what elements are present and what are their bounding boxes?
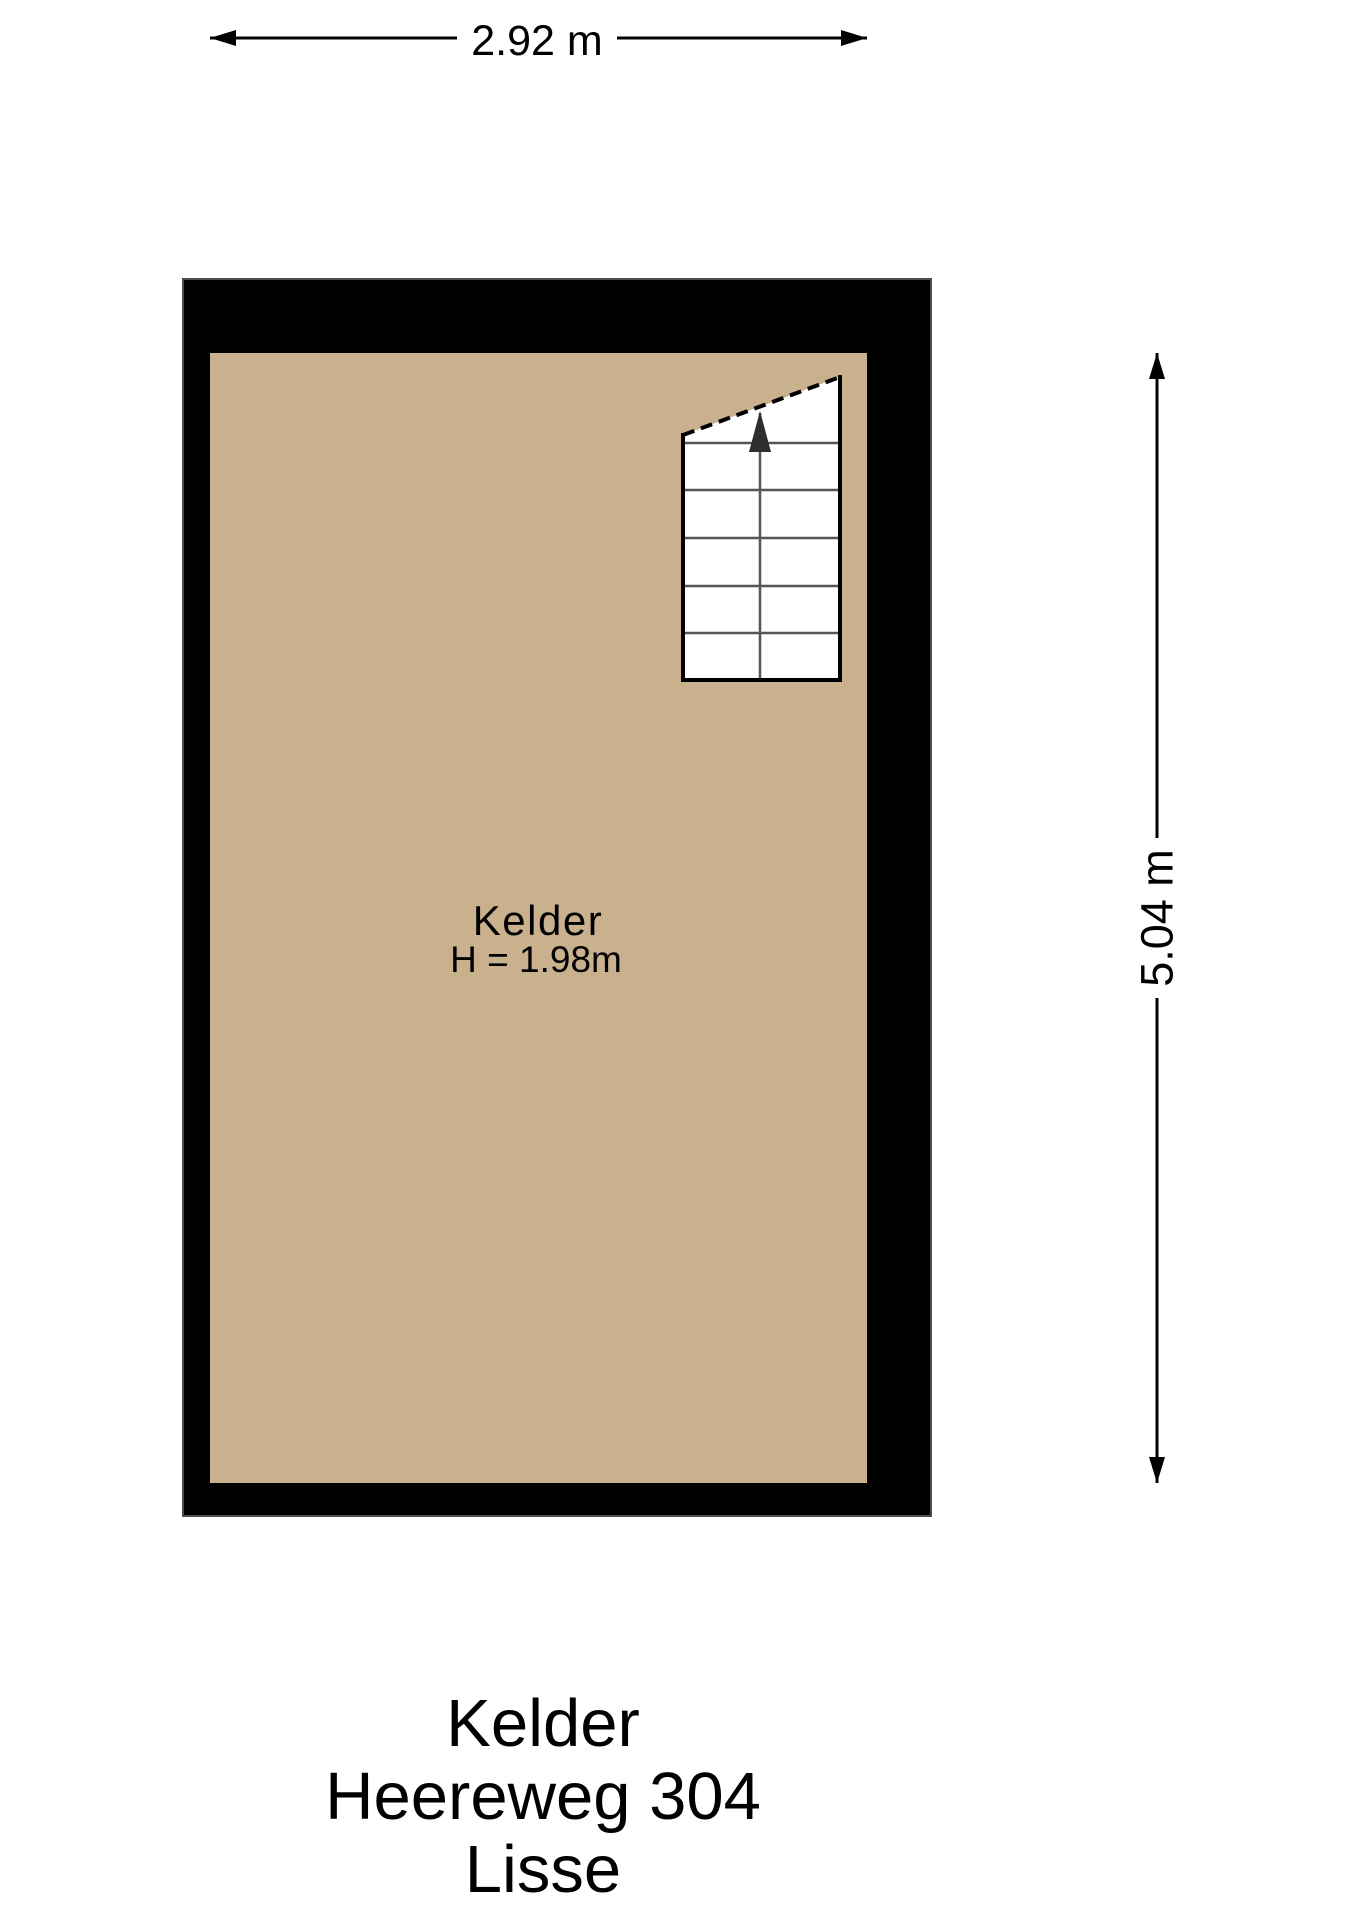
width-dimension: 2.92 m [210,17,867,65]
caption-address: Heereweg 304 [325,1759,761,1834]
arrow-right-icon [841,30,867,46]
arrow-down-icon [1149,1457,1165,1483]
caption-city: Lisse [465,1832,621,1907]
arrow-left-icon [210,30,236,46]
arrow-up-icon [1149,353,1165,379]
height-dimension-label: 5.04 m [1132,849,1183,987]
floorplan-page: 2.92 m Kelder H = 1.98m [0,0,1358,1920]
room-height-label: H = 1.98m [450,939,622,980]
caption-room-name: Kelder [446,1686,640,1761]
floorplan-caption: Kelder Heereweg 304 Lisse [325,1686,761,1907]
height-dimension: 5.04 m [1132,353,1183,1483]
room-name-label: Kelder [473,897,603,944]
width-dimension-label: 2.92 m [471,17,602,65]
floorplan-canvas: 2.92 m Kelder H = 1.98m [0,0,1358,1920]
